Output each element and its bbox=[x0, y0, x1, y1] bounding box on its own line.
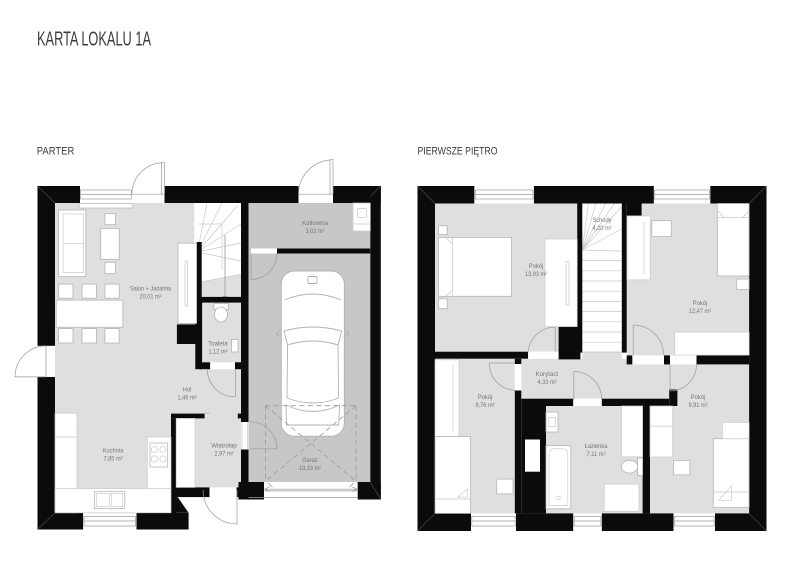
svg-text:12,47 m²: 12,47 m² bbox=[689, 308, 711, 315]
svg-text:Pokój: Pokój bbox=[693, 300, 708, 307]
svg-text:9,76 m²: 9,76 m² bbox=[476, 402, 495, 409]
svg-text:Wiatrołap: Wiatrołap bbox=[211, 443, 237, 450]
svg-text:Garaż: Garaż bbox=[302, 457, 318, 464]
svg-text:Salon + Jadalnia: Salon + Jadalnia bbox=[130, 286, 171, 293]
svg-text:1,12 m²: 1,12 m² bbox=[209, 349, 228, 356]
svg-text:Schody: Schody bbox=[593, 217, 613, 224]
svg-text:Pokój: Pokój bbox=[529, 263, 544, 270]
svg-text:PIERWSZE PIĘTRO: PIERWSZE PIĘTRO bbox=[418, 146, 498, 158]
svg-text:Kuchnia: Kuchnia bbox=[103, 448, 124, 455]
svg-text:4,20 m²: 4,20 m² bbox=[593, 225, 612, 232]
svg-text:4,33 m²: 4,33 m² bbox=[538, 379, 557, 386]
svg-text:13,93 m²: 13,93 m² bbox=[525, 271, 547, 278]
svg-text:1,46 m²: 1,46 m² bbox=[178, 395, 197, 402]
svg-text:Pokój: Pokój bbox=[691, 394, 706, 401]
svg-text:7,85 m²: 7,85 m² bbox=[104, 456, 123, 463]
svg-text:2,97 m²: 2,97 m² bbox=[215, 451, 234, 458]
svg-text:Toaleta: Toaleta bbox=[208, 341, 228, 348]
svg-text:PARTER: PARTER bbox=[37, 146, 75, 158]
svg-text:9,91 m²: 9,91 m² bbox=[689, 402, 708, 409]
svg-text:7,11 m²: 7,11 m² bbox=[587, 451, 606, 458]
svg-text:KARTA LOKALU 1A: KARTA LOKALU 1A bbox=[37, 29, 151, 51]
svg-text:3,02 m²: 3,02 m² bbox=[306, 228, 325, 235]
svg-text:19,33 m²: 19,33 m² bbox=[299, 465, 321, 472]
svg-text:Łazienka: Łazienka bbox=[585, 443, 608, 450]
svg-text:Pokój: Pokój bbox=[478, 394, 493, 401]
svg-text:Korytarz: Korytarz bbox=[536, 371, 559, 378]
svg-text:20,01 m²: 20,01 m² bbox=[140, 294, 162, 301]
svg-text:Hol: Hol bbox=[183, 387, 192, 394]
svg-text:Kotłownia: Kotłownia bbox=[302, 220, 328, 227]
